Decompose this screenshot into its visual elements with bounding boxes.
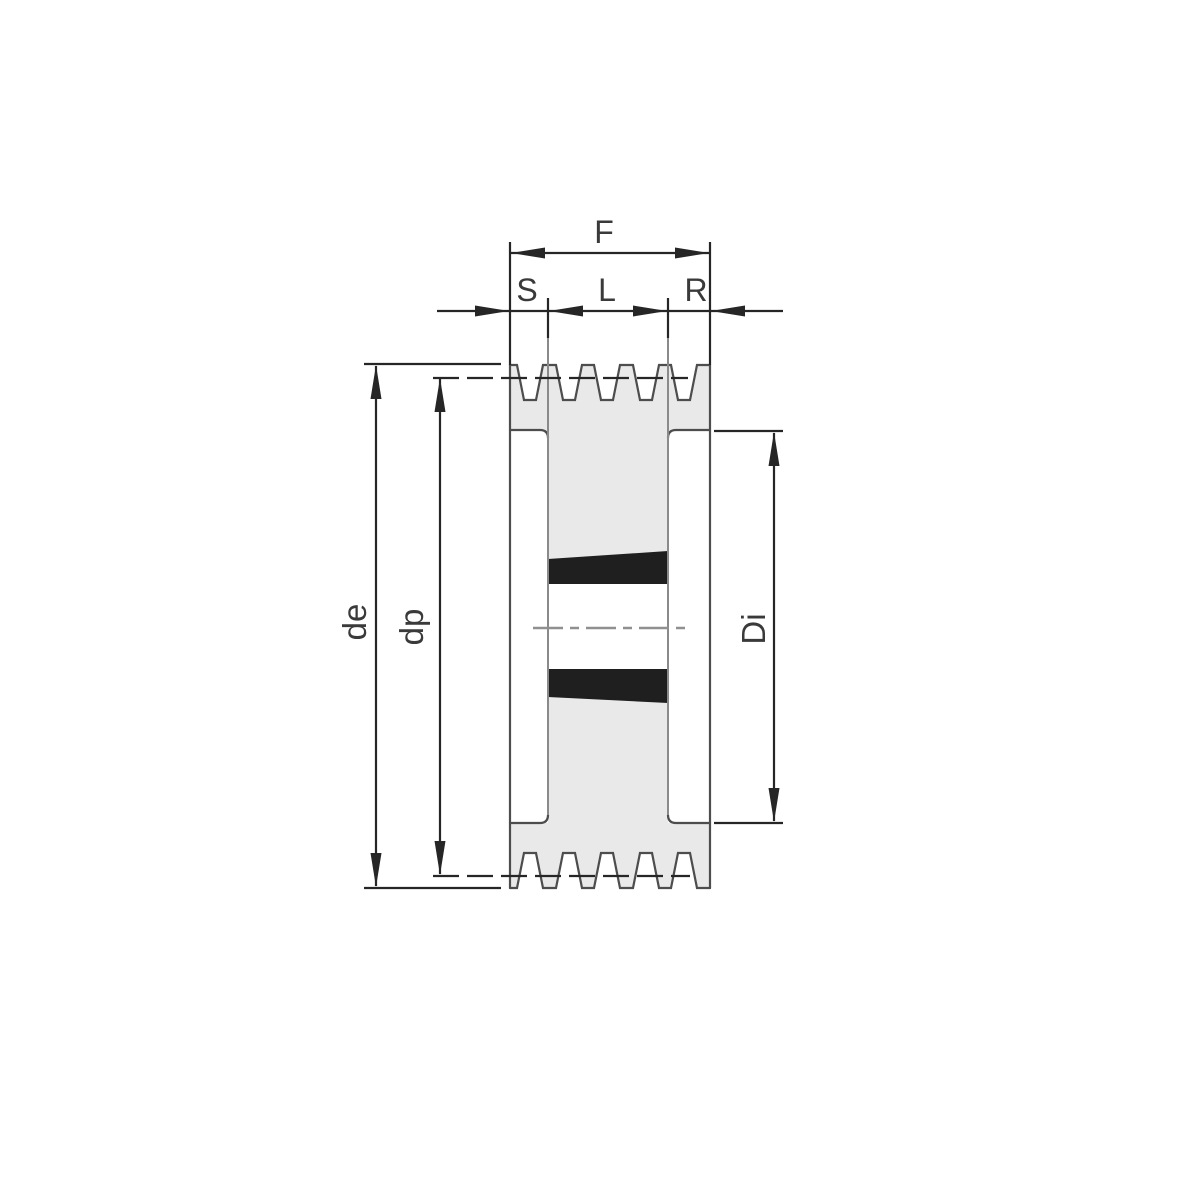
drawing-canvas: F S L R de dp Di xyxy=(0,0,1200,1200)
dim-R-arrow xyxy=(711,306,745,317)
label-face-width-F: F xyxy=(594,214,614,250)
dim-Di-arrow-top xyxy=(769,432,780,466)
dim-Di-arrow-bottom xyxy=(769,788,780,822)
rim-inner-bottom-left xyxy=(510,815,548,823)
label-pitch-diameter-dp: dp xyxy=(393,609,430,646)
label-bush-length-L: L xyxy=(598,272,616,308)
dim-de-arrow-bottom xyxy=(371,853,382,887)
rim-inner-top-left xyxy=(510,430,548,438)
pulley-cross-section xyxy=(510,338,710,888)
label-offset-S: S xyxy=(516,272,537,308)
dim-L-arrow-left xyxy=(549,306,583,317)
rim-inner-top-right xyxy=(668,430,710,438)
taper-bush-lower-section xyxy=(548,670,668,702)
dim-S-arrow xyxy=(475,306,509,317)
dim-F-arrow-left xyxy=(511,248,545,259)
label-offset-R: R xyxy=(684,272,707,308)
label-outside-diameter-de: de xyxy=(336,604,373,641)
hub-upper-fill xyxy=(548,430,668,560)
label-rim-inside-diameter-Di: Di xyxy=(735,613,772,644)
dim-dp-arrow-top xyxy=(435,378,446,412)
hub-lower-fill xyxy=(548,696,668,824)
dim-de-arrow-top xyxy=(371,365,382,399)
dimension-de xyxy=(364,364,501,888)
dim-dp-arrow-bottom xyxy=(435,841,446,875)
dim-F-arrow-right xyxy=(675,248,709,259)
pulley-technical-drawing: F S L R de dp Di xyxy=(0,0,1200,1200)
rim-inner-bottom-right xyxy=(668,815,710,823)
dim-L-arrow-right xyxy=(633,306,667,317)
